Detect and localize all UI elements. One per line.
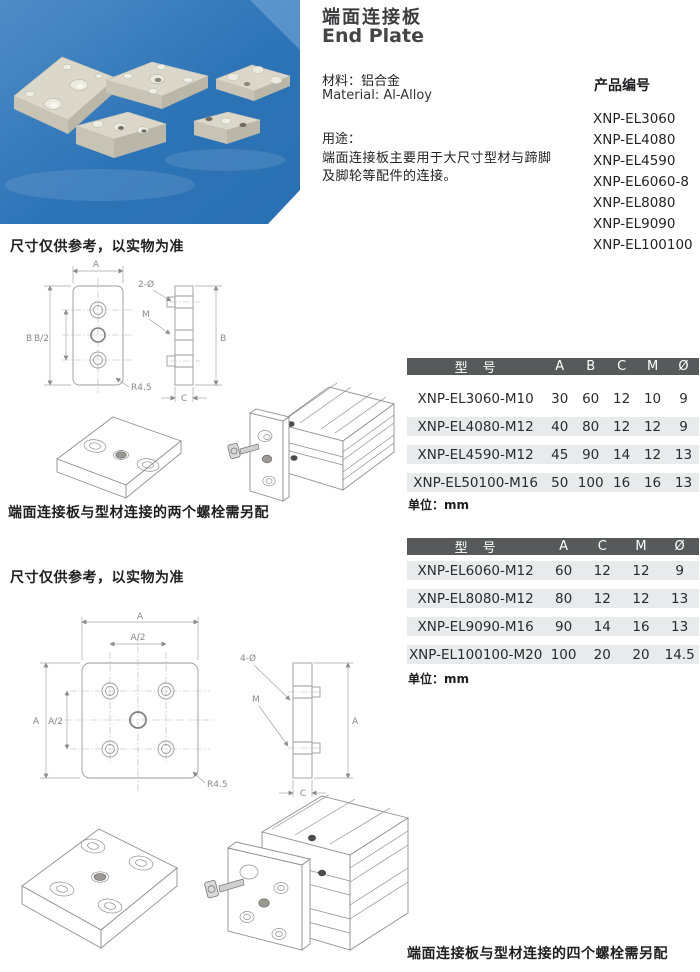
caption-two-bolts: 端面连接板与型材连接的两个螺栓需另配 [8,502,269,522]
table-row: XNP-EL6060-M12 60 12 12 9 [407,561,699,580]
leader-label-m-2: M [252,695,260,705]
table1-header-model: 型 号 [407,357,544,376]
table-row: XNP-EL8080-M12 80 12 12 13 [407,589,699,608]
dim-label-a: A [93,260,100,270]
table-row: XNP-EL4080-M12 40 80 12 12 9 [407,417,699,436]
dim-label-a2-top: A/2 [131,633,146,643]
spec-table-1: 型 号 A B C M Ø XNP-EL3060-M10 30 60 12 10… [407,358,699,501]
dim-label-radius-2: R4.5 [207,780,228,790]
product-code: XNP-EL3060 [593,109,693,130]
leader-label-4dia: 4-Ø [240,653,256,664]
usage-line2: 及脚轮等配件的连接。 [322,165,457,184]
unit-note-1: 单位：mm [408,496,469,513]
drawing-assembly-two-bolts [225,382,400,514]
dim-label-a-left: A [33,717,40,727]
table-row: XNP-EL50100-M16 50 100 16 16 13 [407,473,699,492]
product-code: XNP-EL4080 [593,130,693,151]
table-row: XNP-EL9090-M16 90 14 16 13 [407,617,699,636]
dimension-note-2: 尺寸仅供参考，以实物为准 [10,567,184,587]
page-subtitle: End Plate [322,25,424,47]
product-code: XNP-EL100100 [593,235,693,256]
dim-label-b2: B/2 [34,334,49,344]
material-zh: 材料：铝合金 [322,70,400,89]
table-row: XNP-EL4590-M12 45 90 14 12 13 [407,445,699,464]
leader-label-m: M [142,310,150,320]
usage-line1: 端面连接板主要用于大尺寸型材与蹄脚 [322,147,552,166]
product-code: XNP-EL9090 [593,214,693,235]
end-plate-part-2 [228,842,310,950]
table1-header: 型 号 A B C M Ø [407,358,699,375]
table2-header: 型 号 A C M Ø [407,538,699,555]
table-row: XNP-EL100100-M20 100 20 20 14.5 [407,645,699,664]
drawing-square-plate-views: A A/2 A A/2 R4.5 4-Ø M A C [28,610,363,802]
product-code: XNP-EL8080 [593,193,693,214]
product-code: XNP-EL6060-8 [593,172,693,193]
product-code: XNP-EL4590 [593,151,693,172]
dim-label-c: C [181,394,187,404]
unit-note-2: 单位：mm [408,670,469,687]
drawing-iso-square-plate [15,818,185,968]
end-plate-part [250,409,289,501]
dim-label-a2-left: A/2 [48,717,63,727]
dim-label-a-right: A [352,717,359,727]
leader-label-2dia: 2-Ø [138,279,154,290]
caption-four-bolts: 端面连接板与型材连接的四个螺栓需另配 [407,943,668,963]
product-codes-list: XNP-EL3060 XNP-EL4080 XNP-EL4590 XNP-EL6… [593,109,693,256]
product-photo [0,0,300,225]
table-row: XNP-EL3060-M10 30 60 12 10 9 [407,389,699,408]
drawing-rect-plate-views: A B B/2 R4.5 2-Ø M B C [15,253,230,405]
table2-header-model: 型 号 [407,537,544,556]
dim-label-b-right: B [220,334,226,344]
dim-label-b: B [26,334,32,344]
dim-label-a-top: A [137,612,144,622]
drawing-iso-rect-plate [50,405,190,507]
dim-label-radius-1: R4.5 [131,383,152,393]
spec-table-2: 型 号 A C M Ø XNP-EL6060-M12 60 12 12 9 XN… [407,538,699,673]
usage-title: 用途： [322,128,361,147]
material-en: Material: Al-Alloy [322,88,432,103]
drawing-assembly-four-bolts [200,795,410,963]
extrusion-profile [278,383,394,490]
product-codes-title: 产品编号 [594,75,650,95]
